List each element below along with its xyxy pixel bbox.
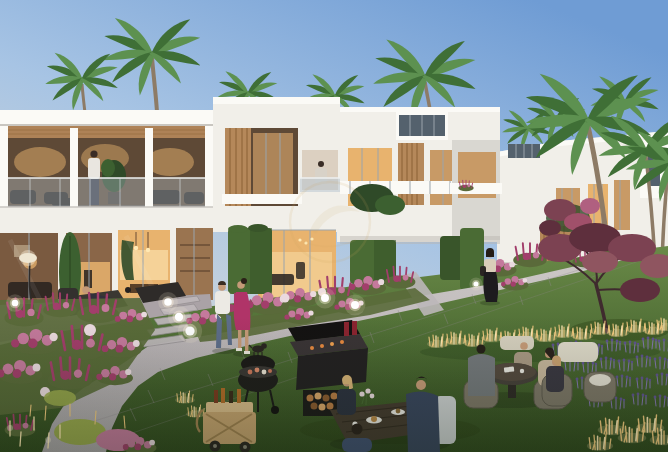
vignette	[0, 0, 668, 452]
scene-render	[0, 0, 668, 452]
property-photo	[0, 0, 668, 452]
